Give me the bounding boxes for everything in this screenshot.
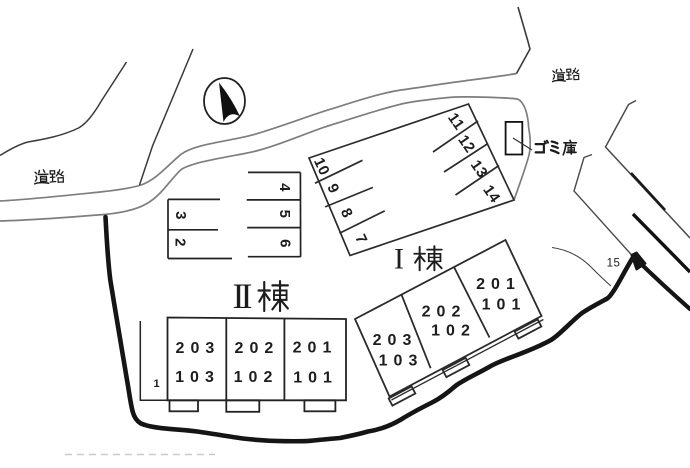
svg-text:202: 202 — [235, 340, 280, 357]
svg-text:8: 8 — [337, 206, 356, 221]
svg-text:102: 102 — [431, 323, 476, 340]
svg-text:3: 3 — [172, 211, 189, 220]
svg-text:14: 14 — [479, 182, 503, 206]
svg-text:6: 6 — [277, 239, 294, 248]
svg-text:5: 5 — [276, 210, 293, 219]
svg-text:203: 203 — [373, 332, 418, 349]
svg-text:102: 102 — [234, 369, 279, 386]
svg-text:201: 201 — [293, 339, 338, 356]
svg-text:101: 101 — [293, 369, 338, 386]
svg-text:202: 202 — [422, 304, 467, 321]
svg-text:103: 103 — [175, 369, 220, 386]
svg-text:101: 101 — [482, 297, 527, 314]
svg-text:10: 10 — [310, 155, 333, 178]
svg-text:7: 7 — [351, 232, 370, 247]
svg-text:4: 4 — [276, 183, 293, 192]
svg-text:1: 1 — [153, 378, 160, 390]
svg-text:103: 103 — [379, 353, 424, 370]
svg-text:II: II — [233, 276, 252, 316]
svg-text:13: 13 — [467, 157, 491, 181]
svg-text:2: 2 — [172, 238, 189, 247]
svg-text:9: 9 — [323, 181, 342, 196]
svg-text:I: I — [394, 243, 404, 276]
svg-text:15: 15 — [607, 258, 621, 270]
svg-text:203: 203 — [176, 340, 221, 357]
svg-text:201: 201 — [476, 276, 521, 293]
